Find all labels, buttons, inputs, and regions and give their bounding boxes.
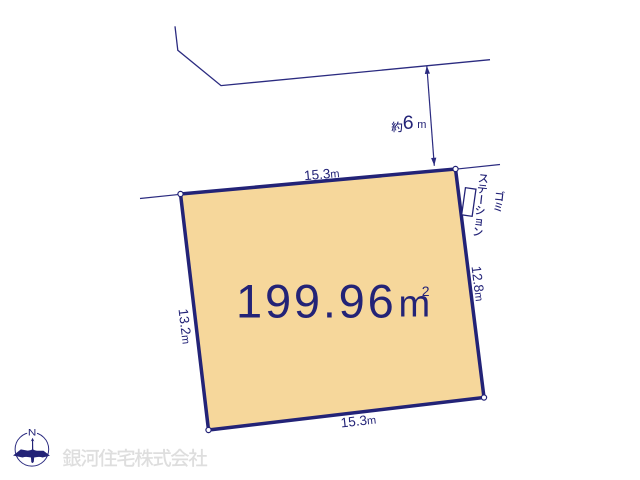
svg-text:199.96: 199.96	[236, 275, 397, 328]
svg-text:6: 6	[403, 112, 414, 134]
svg-text:15.3m: 15.3m	[303, 165, 340, 183]
svg-text:15.3m: 15.3m	[340, 412, 377, 431]
svg-text:m: m	[417, 119, 426, 131]
svg-text:N: N	[28, 429, 36, 438]
svg-text:2: 2	[422, 283, 430, 299]
svg-text:13.2m: 13.2m	[176, 308, 195, 345]
